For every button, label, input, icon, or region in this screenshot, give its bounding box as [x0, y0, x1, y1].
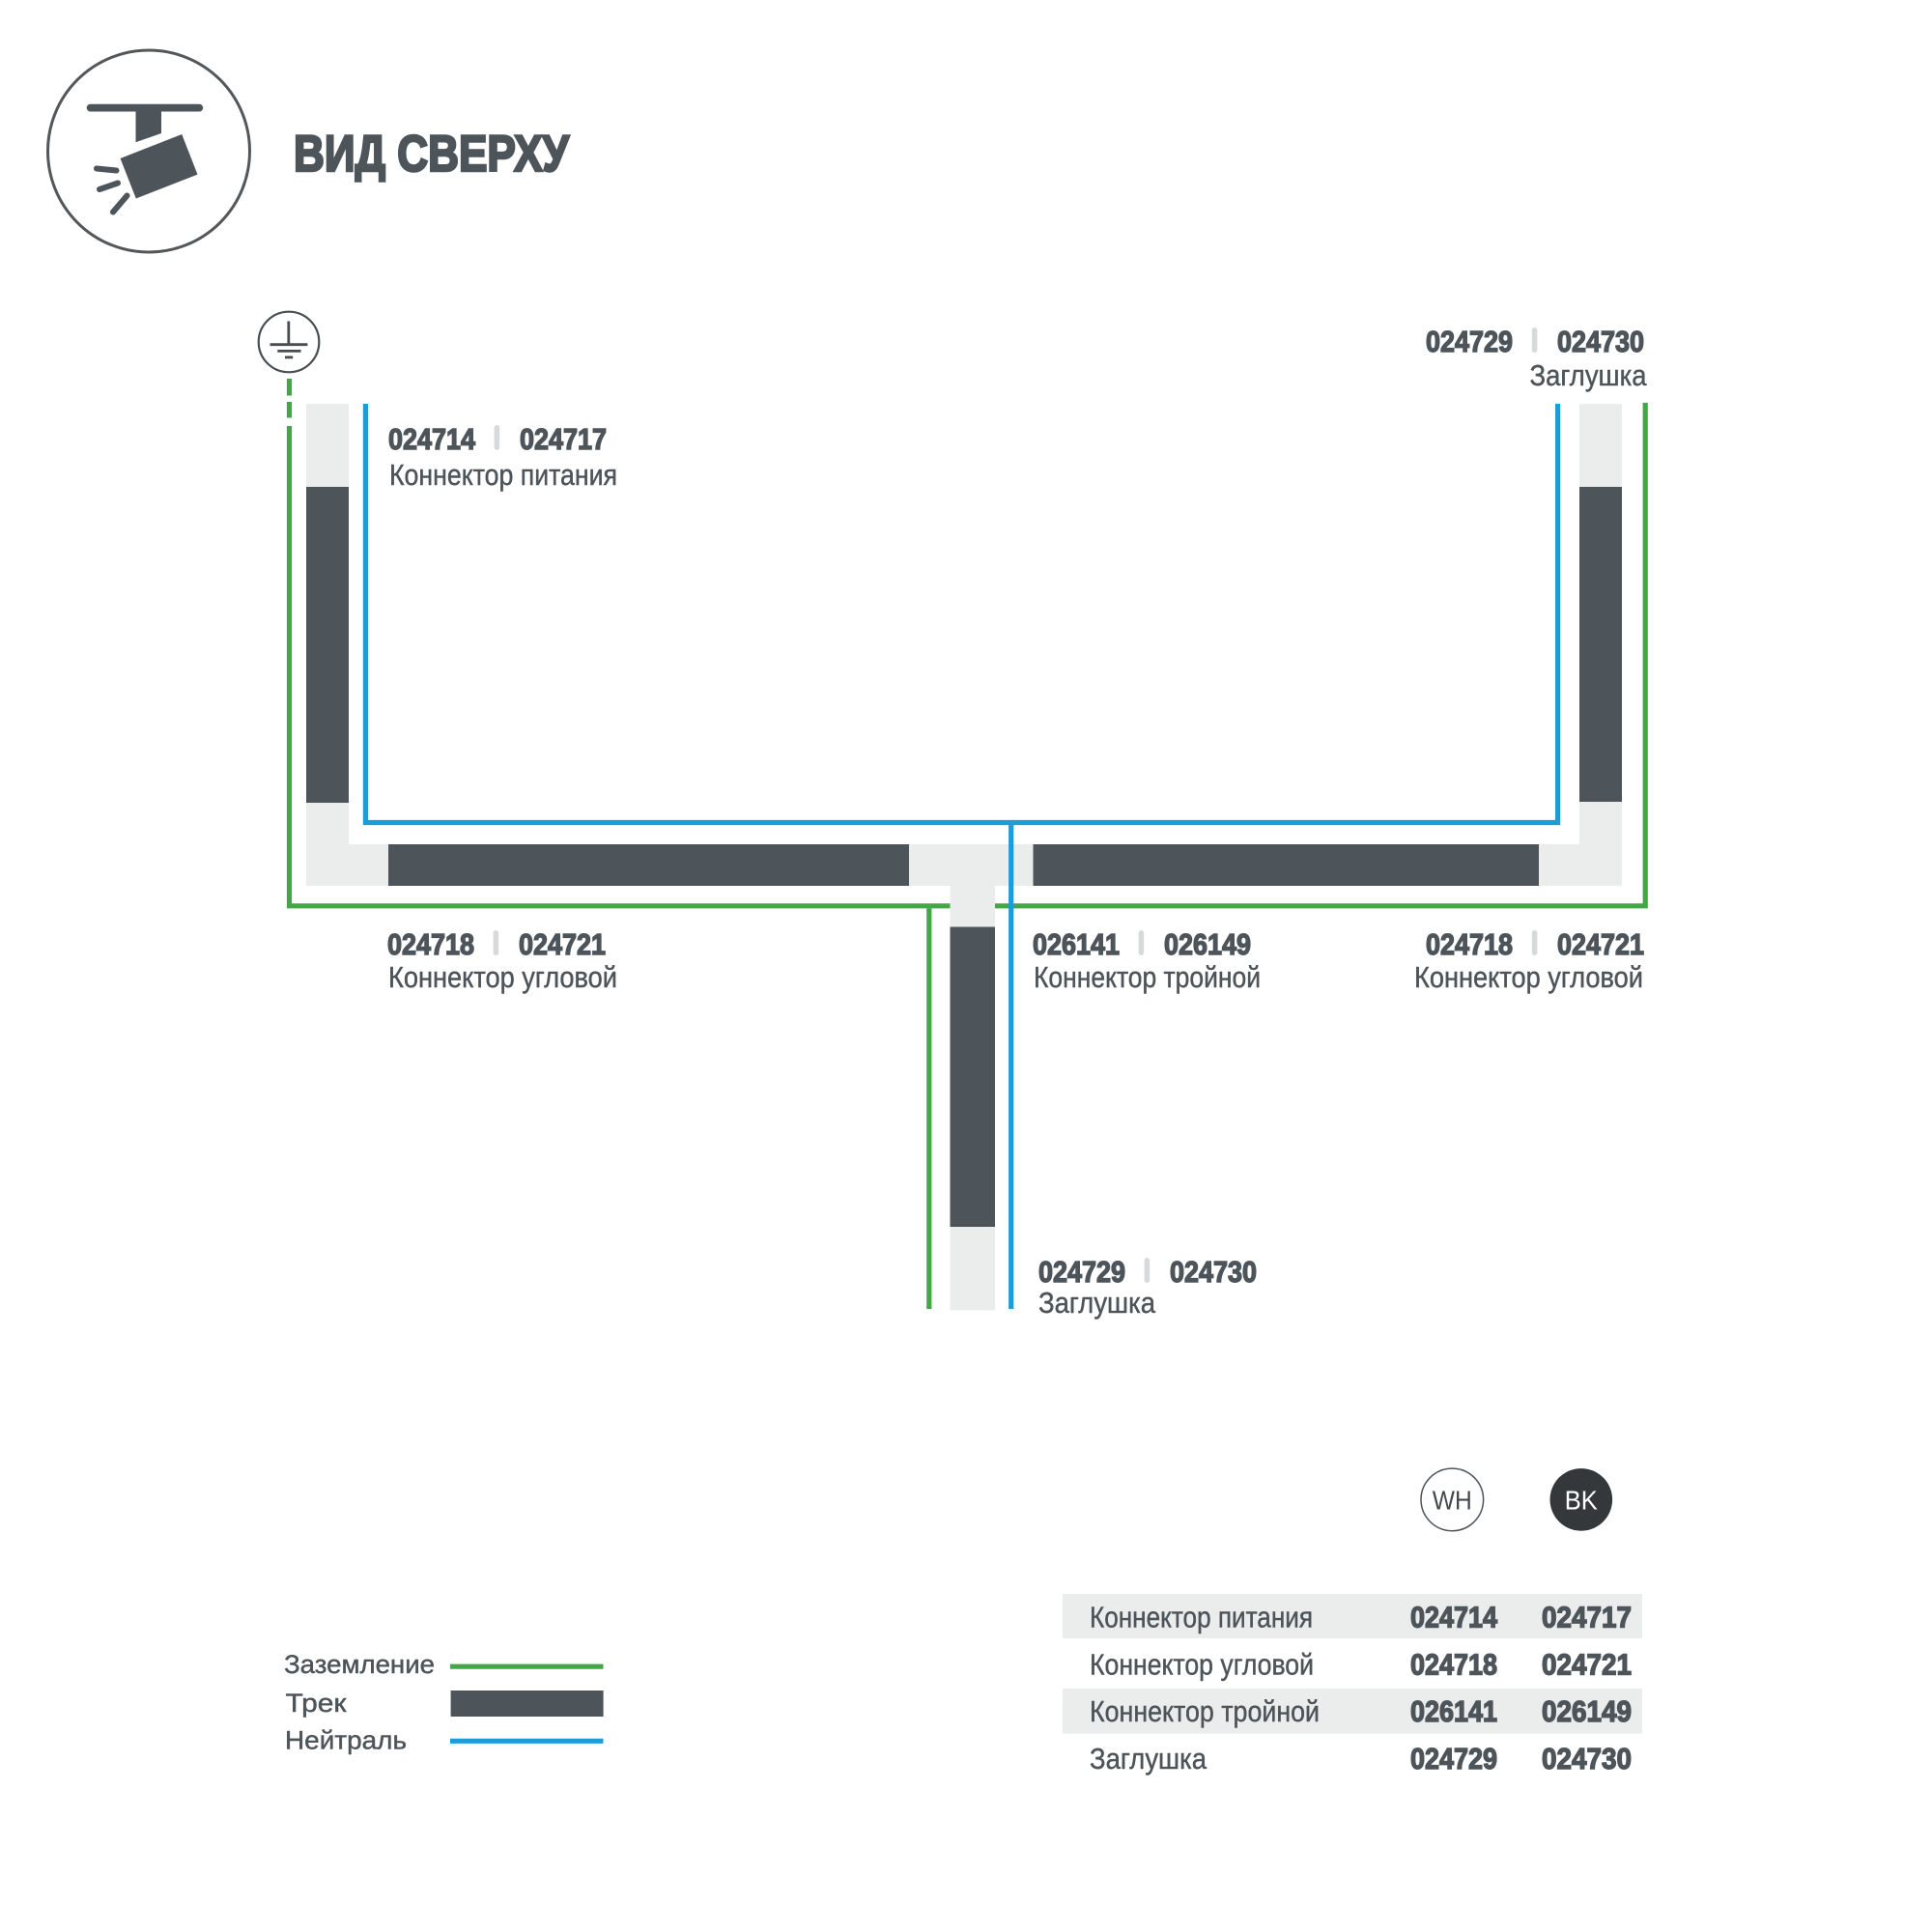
svg-text:026141: 026141: [1033, 927, 1120, 961]
svg-text:024730: 024730: [1542, 1742, 1632, 1776]
svg-text:024721: 024721: [1557, 927, 1644, 961]
svg-text:024714: 024714: [1410, 1600, 1498, 1634]
svg-text:024730: 024730: [1557, 325, 1644, 358]
svg-text:Коннектор угловой: Коннектор угловой: [1414, 960, 1643, 994]
svg-text:Заглушка: Заглушка: [1530, 358, 1648, 392]
svg-text:024714: 024714: [388, 422, 476, 456]
svg-text:Коннектор угловой: Коннектор угловой: [1090, 1647, 1314, 1681]
svg-text:Заглушка: Заглушка: [1038, 1286, 1156, 1320]
svg-text:024721: 024721: [519, 927, 606, 961]
svg-text:Заземление: Заземление: [284, 1650, 435, 1679]
svg-text:024717: 024717: [1542, 1600, 1632, 1634]
svg-text:024729: 024729: [1038, 1255, 1125, 1289]
svg-text:026141: 026141: [1410, 1694, 1497, 1728]
svg-text:Трек: Трек: [286, 1689, 347, 1718]
svg-text:BK: BK: [1565, 1486, 1598, 1516]
svg-text:Нейтраль: Нейтраль: [285, 1726, 407, 1755]
svg-text:024718: 024718: [1426, 927, 1513, 961]
svg-text:024721: 024721: [1542, 1647, 1632, 1681]
svg-text:WH: WH: [1433, 1485, 1472, 1515]
svg-text:026149: 026149: [1542, 1694, 1632, 1728]
svg-text:Коннектор угловой: Коннектор угловой: [388, 960, 617, 994]
svg-text:024717: 024717: [520, 422, 607, 456]
svg-text:Коннектор питания: Коннектор питания: [1090, 1600, 1313, 1634]
svg-text:024729: 024729: [1410, 1742, 1497, 1776]
svg-text:024718: 024718: [1410, 1647, 1497, 1681]
svg-text:ВИД СВЕРХУ: ВИД СВЕРХУ: [294, 126, 570, 183]
svg-text:Заглушка: Заглушка: [1090, 1742, 1207, 1776]
svg-text:Коннектор тройной: Коннектор тройной: [1090, 1694, 1320, 1728]
svg-text:024730: 024730: [1170, 1255, 1257, 1289]
svg-text:024729: 024729: [1426, 325, 1513, 358]
svg-text:Коннектор тройной: Коннектор тройной: [1034, 960, 1261, 994]
svg-text:024718: 024718: [387, 927, 474, 961]
svg-text:026149: 026149: [1164, 927, 1251, 961]
svg-text:Коннектор питания: Коннектор питания: [389, 458, 617, 492]
